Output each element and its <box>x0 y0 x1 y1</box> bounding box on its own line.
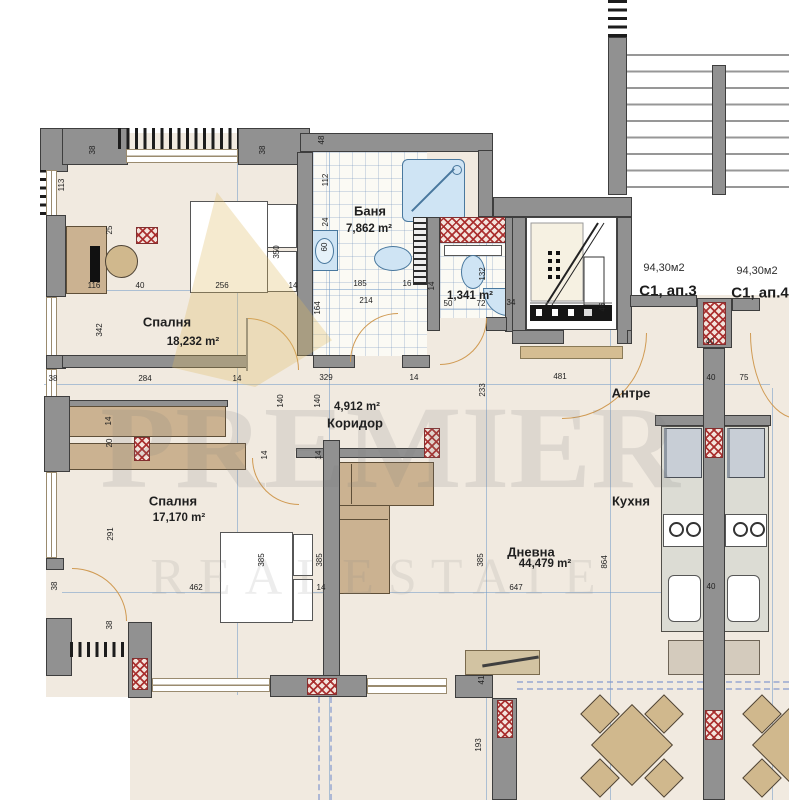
dimension-label: 14 <box>317 584 326 592</box>
wall-segment <box>486 317 507 331</box>
kitchen-sink <box>668 575 701 622</box>
red-column <box>307 678 337 695</box>
kitchen-sink <box>727 575 760 622</box>
bed <box>190 201 268 293</box>
stairwell-wall <box>712 65 726 195</box>
wardrobe <box>66 443 246 470</box>
window <box>126 149 238 163</box>
dimension-label: 164 <box>314 301 322 314</box>
insulation-hatch <box>70 642 128 657</box>
cooktop-burner <box>669 522 684 537</box>
wall-segment <box>313 355 355 368</box>
dimension-label: 185 <box>353 280 366 288</box>
wall-segment <box>297 152 313 356</box>
outside-area <box>0 697 130 800</box>
red-column <box>136 227 158 244</box>
wall-segment <box>300 133 493 152</box>
outside-area <box>630 197 789 295</box>
nightstand <box>293 534 313 576</box>
dimension-label: 462 <box>189 584 202 592</box>
red-column <box>440 217 515 243</box>
dimension-label: 40 <box>706 338 715 346</box>
dimension-label: 40 <box>707 583 716 591</box>
dimension-label: 214 <box>359 297 372 305</box>
elevator-wall <box>617 217 632 344</box>
elevator-machinery <box>526 217 617 330</box>
dimension-label: 60 <box>321 243 329 252</box>
cooktop-burner <box>686 522 701 537</box>
stair-treads <box>627 54 789 196</box>
dimension-label: 25 <box>106 226 114 235</box>
cooktop-burner <box>733 522 748 537</box>
elevator-wall <box>512 330 564 344</box>
nightstand <box>267 204 297 248</box>
dimension-label: 342 <box>96 323 104 336</box>
wall-segment <box>46 618 72 676</box>
dimension-label: 41 <box>478 676 486 685</box>
dimension-label: 14 <box>105 417 113 426</box>
dimension-label: 16 <box>403 280 412 288</box>
room-area-bedroom-2: 17,170 m² <box>153 512 205 524</box>
room-area-living-room: 44,479 m² <box>519 558 571 570</box>
cooktop-burner <box>750 522 765 537</box>
dimension-label: 193 <box>475 738 483 751</box>
apartment-3-unit: С1, ап.3 <box>639 283 696 300</box>
red-column <box>705 710 723 740</box>
dimension-label: 14 <box>261 451 269 460</box>
dimension-label: 256 <box>215 282 228 290</box>
dimension-label: 481 <box>553 373 566 381</box>
dimension-label: 14 <box>233 375 242 383</box>
wall-segment <box>46 558 64 570</box>
wall-segment <box>62 355 247 368</box>
dimension-label: 38 <box>51 582 59 591</box>
sofa-seam <box>339 519 388 520</box>
wall-segment <box>478 150 493 217</box>
room-label-entry: Антре <box>612 386 651 401</box>
guide-line <box>44 384 770 385</box>
dimension-label: 385 <box>258 553 266 566</box>
wall-segment <box>44 396 70 472</box>
red-column <box>132 658 148 690</box>
dimension-label: 24 <box>322 218 330 227</box>
insulation-hatch <box>608 0 627 37</box>
stairwell-wall <box>608 37 627 195</box>
sofa-seam <box>351 464 352 504</box>
apartment-4-area: 94,30м2 <box>736 265 777 277</box>
dimension-label: 132 <box>479 267 487 280</box>
dimension-label: 291 <box>107 527 115 540</box>
desk-monitor <box>90 246 100 282</box>
floor-plan: PREMIER REALESTATE Спалня 18,232 m² Баня… <box>0 0 789 800</box>
glazing-dashed <box>726 681 789 690</box>
dimension-label: 864 <box>601 555 609 568</box>
wall-segment <box>323 440 340 697</box>
elevator-shaft <box>526 217 617 330</box>
dimension-label: 40 <box>707 374 716 382</box>
dimension-label: 14 <box>428 282 436 291</box>
dimension-label: 72 <box>477 300 486 308</box>
fridge <box>727 428 765 478</box>
window <box>367 678 447 694</box>
room-label-bedroom-2: Спалня <box>149 494 197 509</box>
apartment-4-unit: С1, ап.4 <box>731 285 788 302</box>
window <box>152 678 270 692</box>
shower-head <box>452 165 462 175</box>
dimension-label: 38 <box>49 375 58 383</box>
room-label-kitchen: Кухня <box>612 494 650 509</box>
room-label-bedroom-1: Спалня <box>143 315 191 330</box>
dimension-label: 50 <box>444 300 453 308</box>
dimension-label: 75 <box>740 374 749 382</box>
dimension-label: 38 <box>89 146 97 155</box>
dimension-label: 112 <box>322 174 330 187</box>
dimension-label: 20 <box>106 439 114 448</box>
dimension-label: 140 <box>277 394 285 407</box>
dimension-label: 48 <box>318 136 326 145</box>
apartment-3-area: 94,30м2 <box>643 262 684 274</box>
toilet <box>374 246 412 271</box>
dimension-label: 350 <box>273 245 281 258</box>
dimension-label: 14 <box>289 282 298 290</box>
room-area-bedroom-1: 18,232 m² <box>167 336 219 348</box>
desk <box>66 226 107 294</box>
dimension-label: 329 <box>319 374 332 382</box>
wall-segment <box>455 675 493 698</box>
dimension-label: 14 <box>410 374 419 382</box>
wall-segment <box>46 215 66 297</box>
window <box>46 297 57 359</box>
wall-segment <box>402 355 430 368</box>
dimension-label: 34 <box>507 299 516 307</box>
dimension-label: 14 <box>315 451 323 460</box>
room-area-wc: 1,341 m² <box>447 290 493 302</box>
guide-line <box>313 289 430 290</box>
door-leaf <box>246 318 248 371</box>
red-column <box>424 428 440 458</box>
red-column <box>705 428 723 458</box>
fridge <box>664 428 702 478</box>
room-area-corridor: 4,912 m² <box>334 401 380 413</box>
dimension-label: 113 <box>58 179 66 192</box>
dimension-label: 284 <box>138 375 151 383</box>
dimension-label: 38 <box>259 146 267 155</box>
room-label-bathroom: Баня <box>354 204 386 219</box>
nightstand <box>293 579 313 621</box>
bed <box>220 532 293 623</box>
red-column <box>134 437 150 461</box>
dimension-label: 385 <box>316 553 324 566</box>
office-chair <box>105 245 138 278</box>
dimension-label: 46 <box>599 303 607 312</box>
glazing-dashed <box>318 697 332 800</box>
wall-segment <box>493 197 632 217</box>
window <box>46 472 57 558</box>
dimension-label: 233 <box>479 383 487 396</box>
wardrobe <box>66 406 226 437</box>
dimension-label: 385 <box>477 553 485 566</box>
elevator-wall <box>512 217 526 344</box>
window <box>46 170 57 216</box>
duct-shaft <box>413 217 427 285</box>
dimension-label: 140 <box>314 394 322 407</box>
dimension-label: 647 <box>509 584 522 592</box>
room-label-corridor: Коридор <box>327 416 383 431</box>
room-area-bathroom: 7,862 m² <box>346 223 392 235</box>
dimension-label: 116 <box>88 282 101 290</box>
outside-area <box>0 0 46 800</box>
glazing-dashed <box>517 681 703 690</box>
red-column <box>497 700 513 738</box>
dimension-label: 40 <box>136 282 145 290</box>
dimension-label: 38 <box>106 621 114 630</box>
wall-segment <box>427 217 440 331</box>
